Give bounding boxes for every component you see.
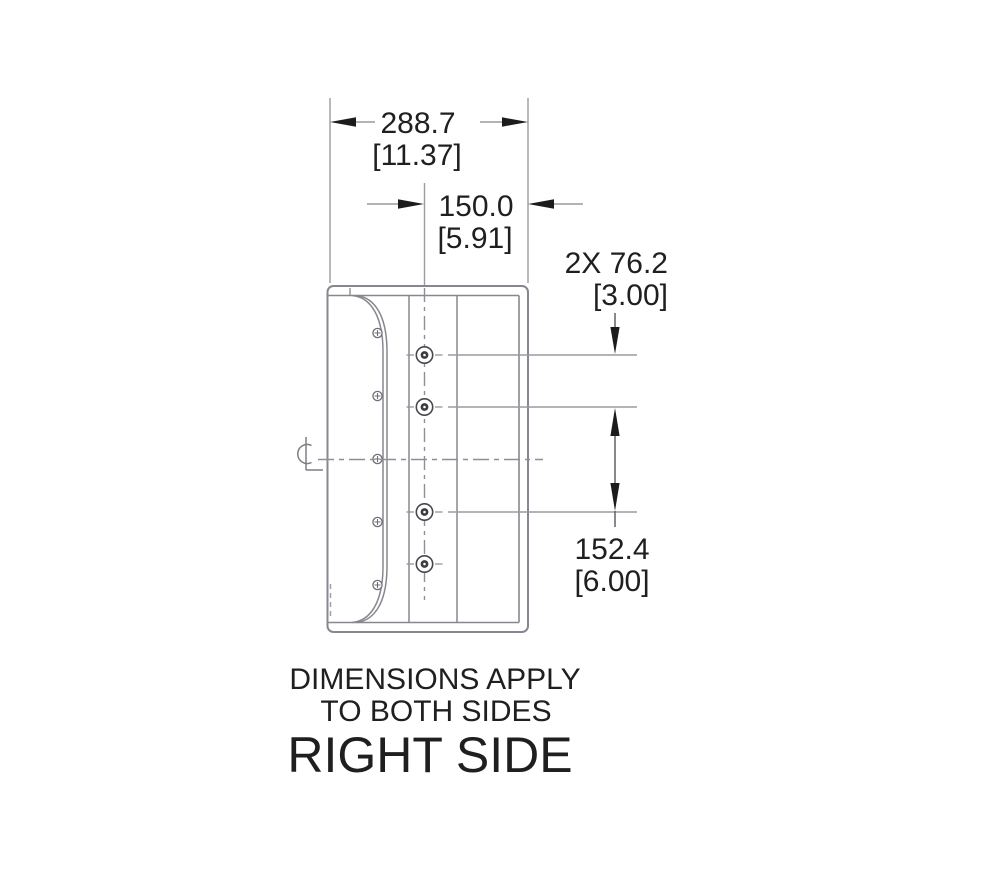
dim-hole-pitch-mm: 2X 76.2 xyxy=(565,247,668,280)
dim-hole-to-back-inch: [5.91] xyxy=(437,222,512,255)
note-line-2: TO BOTH SIDES xyxy=(320,695,551,728)
screw-icon xyxy=(373,391,382,400)
view-title: RIGHT SIDE xyxy=(287,727,572,783)
dim-hole-span-inch: [6.00] xyxy=(574,565,649,598)
dim-overall-width-mm: 288.7 xyxy=(380,107,455,140)
dim-hole-to-back: 150.0 [5.91] xyxy=(367,190,583,255)
drawing-notes: DIMENSIONS APPLY TO BOTH SIDES RIGHT SID… xyxy=(287,663,580,783)
dim-hole-to-back-mm: 150.0 xyxy=(438,190,513,223)
screw-icon xyxy=(373,328,382,337)
arrow-down-icon xyxy=(610,483,619,511)
dim-hole-pitch-inch: [3.00] xyxy=(593,279,668,312)
note-line-1: DIMENSIONS APPLY xyxy=(289,663,580,696)
arrow-left-icon xyxy=(330,117,356,126)
arrow-right-icon xyxy=(502,117,528,126)
arrow-down-icon xyxy=(610,327,619,354)
centerline-symbol-icon xyxy=(298,437,323,470)
arrow-left-icon xyxy=(528,199,554,208)
right-side-view-drawing: 288.7 [11.37] 150.0 [5.91] 2X 76.2 [3.00… xyxy=(0,0,989,888)
arrow-right-icon xyxy=(398,199,424,208)
technical-drawing-page: 288.7 [11.37] 150.0 [5.91] 2X 76.2 [3.00… xyxy=(0,0,989,888)
dim-hole-pitch: 2X 76.2 [3.00] xyxy=(565,247,668,354)
arrow-up-icon xyxy=(610,408,619,436)
screw-icon xyxy=(373,517,382,526)
dim-overall-width: 288.7 [11.37] xyxy=(330,107,528,172)
screw-icon xyxy=(373,580,382,589)
dim-hole-span-mm: 152.4 xyxy=(574,533,649,566)
dim-hole-span: 152.4 [6.00] xyxy=(574,408,649,598)
dim-overall-width-inch: [11.37] xyxy=(372,139,462,172)
